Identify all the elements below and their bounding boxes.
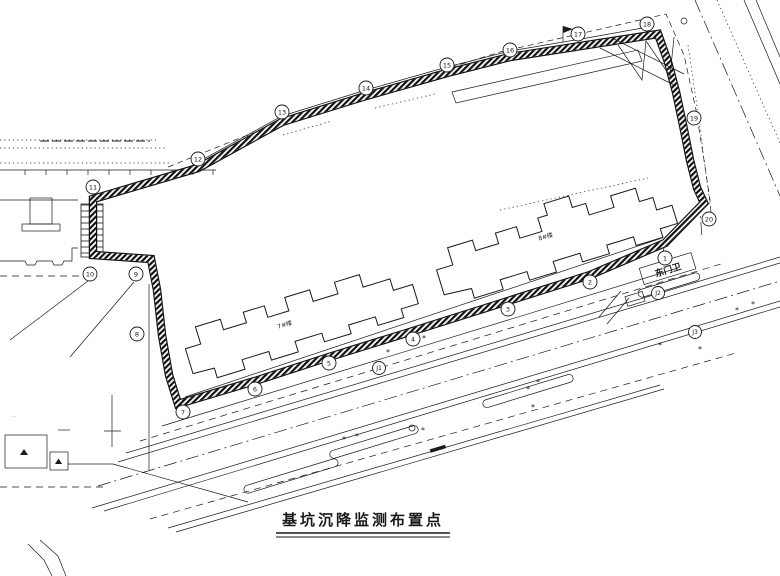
svg-text:15: 15 (443, 61, 451, 69)
svg-text:14: 14 (362, 84, 370, 92)
tree-marker: * (658, 341, 662, 350)
tree-symbol (20, 449, 28, 455)
svg-text:17: 17 (574, 30, 582, 38)
pedestal-base (22, 224, 60, 231)
svg-text:16: 16 (506, 46, 514, 54)
monitoring-point-20: 20 (702, 212, 716, 226)
tree-marker: * (751, 300, 755, 309)
svg-text:6: 6 (253, 385, 257, 393)
drawing-title-block: 基坑沉降监测布置点 (276, 511, 450, 537)
svg-text:20: 20 (705, 215, 713, 223)
east-road (695, 0, 780, 196)
west-structures (0, 198, 149, 470)
svg-text:3: 3 (506, 305, 510, 313)
monitoring-point-8: 8 (130, 327, 144, 341)
tree-marker: * (355, 432, 359, 441)
svg-text:4: 4 (411, 335, 415, 343)
monitoring-point-15: 15 (440, 58, 454, 72)
drawing-title: 基坑沉降监测布置点 (281, 511, 444, 529)
road-dark-dash (430, 445, 446, 453)
monitoring-point-5: 5 (322, 356, 336, 370)
tree-marker: * (421, 426, 425, 435)
benchmark-J2: J2 (652, 287, 665, 300)
monitoring-point-19: 19 (687, 111, 701, 125)
tree-marker: * (342, 435, 346, 444)
monitoring-point-9: 9 (129, 267, 143, 281)
tree-markers-layer: ************ (342, 300, 755, 444)
monitoring-point-13: 13 (275, 105, 289, 119)
monitoring-point-16: 16 (503, 43, 517, 57)
tree-symbol (55, 459, 62, 465)
svg-text:12: 12 (194, 155, 202, 163)
svg-text:8: 8 (135, 330, 139, 338)
svg-text:7: 7 (181, 408, 185, 416)
svg-text:1: 1 (663, 254, 667, 262)
monitoring-point-7: 7 (176, 405, 190, 419)
site-plan-page: ⋯ (0, 0, 780, 576)
pedestal-structure (30, 198, 52, 224)
svg-text:J1: J1 (375, 365, 382, 372)
tiny-label: ⋯ (12, 414, 16, 419)
monitoring-point-12: 12 (191, 152, 205, 166)
tree-marker: * (531, 403, 535, 412)
tree-marker: * (735, 306, 739, 315)
tree-marker: * (536, 378, 540, 387)
monitoring-point-4: 4 (406, 332, 420, 346)
monitoring-point-2: 2 (583, 275, 597, 289)
pole-circle (681, 18, 687, 24)
svg-text:2: 2 (588, 278, 592, 286)
benchmark-J1: J1 (373, 362, 386, 375)
svg-text:19: 19 (690, 114, 698, 122)
svg-text:13: 13 (278, 108, 286, 116)
monitoring-point-10: 10 (83, 267, 97, 281)
svg-text:5: 5 (327, 359, 331, 367)
monitoring-point-14: 14 (359, 81, 373, 95)
monitoring-point-3: 3 (501, 302, 515, 316)
svg-text:11: 11 (89, 183, 97, 191)
monitoring-point-17: 17 (571, 27, 585, 41)
benchmark-J3: J3 (689, 326, 702, 339)
monitoring-point-18: 18 (640, 17, 654, 31)
svg-text:18: 18 (643, 20, 651, 28)
svg-text:J3: J3 (691, 329, 698, 336)
svg-text:10: 10 (86, 270, 94, 278)
monitoring-point-6: 6 (248, 382, 262, 396)
tree-marker: * (698, 345, 702, 354)
small-building (5, 435, 47, 468)
monitoring-point-11: 11 (86, 180, 100, 194)
tree-marker: * (526, 385, 530, 394)
svg-text:J2: J2 (654, 290, 661, 297)
tree-marker: * (422, 334, 426, 343)
site-plan-drawing: ⋯ (0, 0, 780, 576)
svg-text:9: 9 (134, 270, 138, 278)
tree-marker: * (386, 348, 390, 357)
monitoring-point-1: 1 (658, 251, 672, 265)
